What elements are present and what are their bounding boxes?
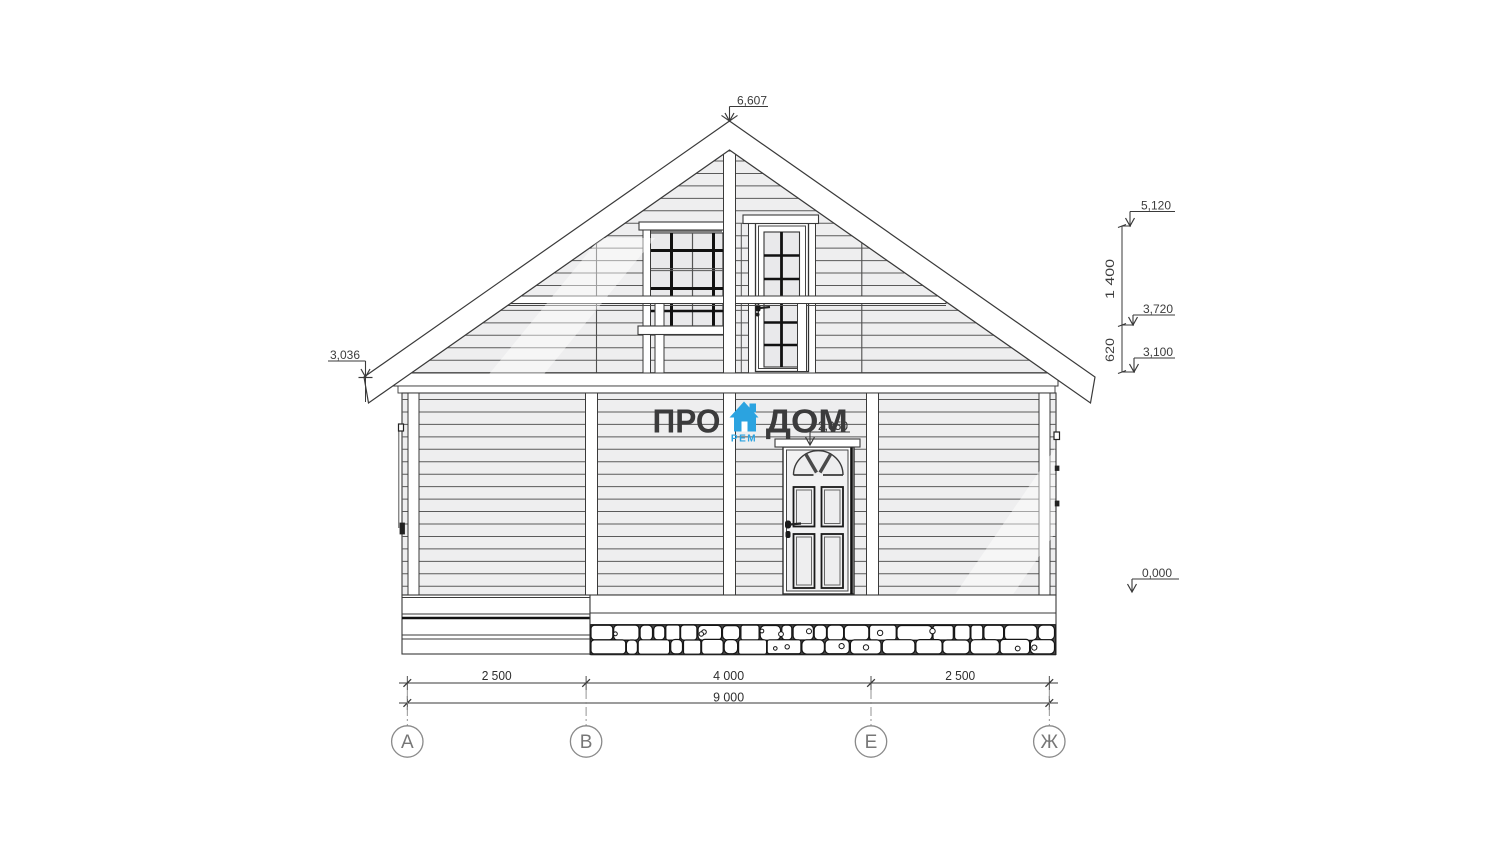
svg-text:Ж: Ж [1041, 732, 1059, 753]
svg-text:1 400: 1 400 [1103, 259, 1117, 299]
svg-text:ПРО: ПРО [653, 403, 721, 440]
svg-text:А: А [401, 732, 414, 753]
svg-text:6,607: 6,607 [737, 94, 767, 108]
svg-text:3,100: 3,100 [1143, 345, 1173, 359]
svg-text:2 500: 2 500 [945, 668, 975, 683]
svg-text:Е: Е [865, 732, 878, 753]
svg-text:3,036: 3,036 [330, 348, 360, 362]
svg-text:4 000: 4 000 [713, 668, 744, 683]
svg-text:3,720: 3,720 [1143, 302, 1173, 316]
svg-text:2 500: 2 500 [482, 668, 512, 683]
svg-text:9 000: 9 000 [713, 690, 744, 705]
svg-text:2,050: 2,050 [818, 419, 848, 433]
svg-text:5,120: 5,120 [1141, 199, 1171, 213]
svg-text:РЕМ: РЕМ [731, 434, 757, 445]
svg-text:620: 620 [1103, 338, 1117, 362]
svg-text:В: В [580, 732, 593, 753]
svg-text:0,000: 0,000 [1142, 566, 1172, 580]
